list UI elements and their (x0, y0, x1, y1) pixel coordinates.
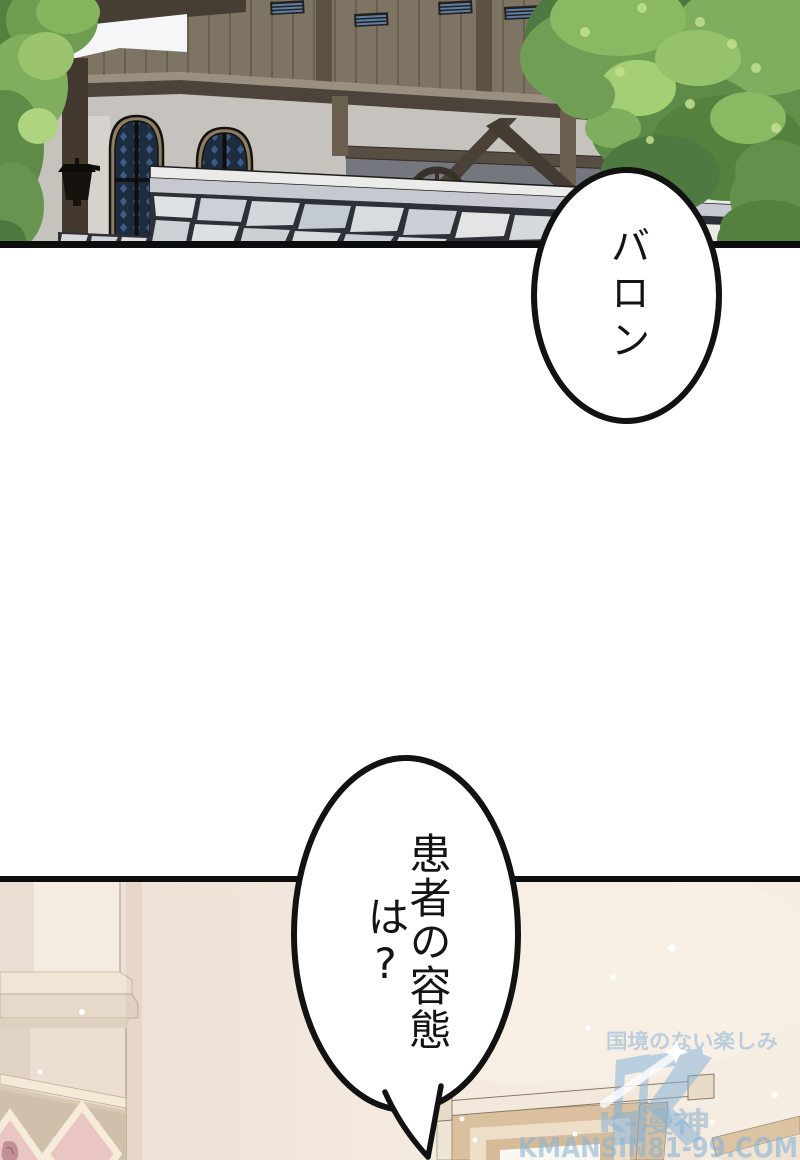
column (0, 882, 142, 1160)
timber-post (332, 96, 348, 156)
plaster-strip (88, 116, 110, 246)
watermark-site: KMANSIN81-99.COM (518, 1131, 798, 1160)
speech-text: バロン (607, 225, 647, 366)
speech-bubble-baron: バロン (531, 167, 722, 424)
manga-page: 国境のない楽しみ K-漫神 KMANSIN81-99.COM バロン 患者の容態… (0, 0, 800, 1160)
speech-text: 患者の容態は? (366, 788, 446, 1096)
